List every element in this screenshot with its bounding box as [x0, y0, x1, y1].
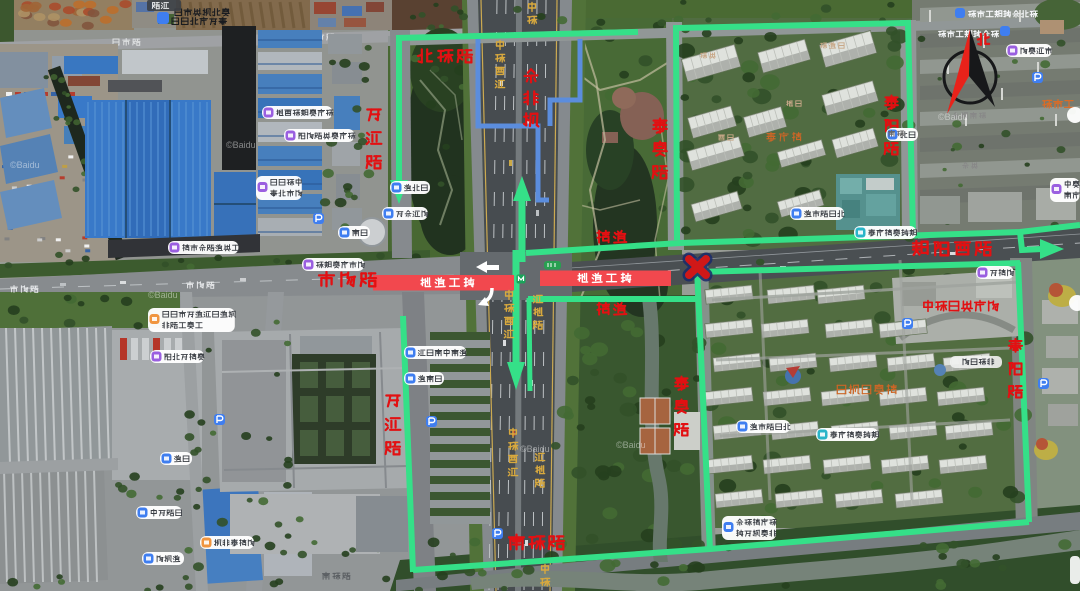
svg-text:©Baidu: ©Baidu — [226, 140, 256, 150]
svg-text:©Baidu: ©Baidu — [148, 290, 178, 300]
svg-text:©Baidu: ©Baidu — [616, 440, 646, 450]
svg-text:©Baidu: ©Baidu — [10, 160, 40, 170]
svg-text:©Baidu: ©Baidu — [938, 112, 968, 122]
svg-text:©Baidu: ©Baidu — [520, 444, 550, 454]
